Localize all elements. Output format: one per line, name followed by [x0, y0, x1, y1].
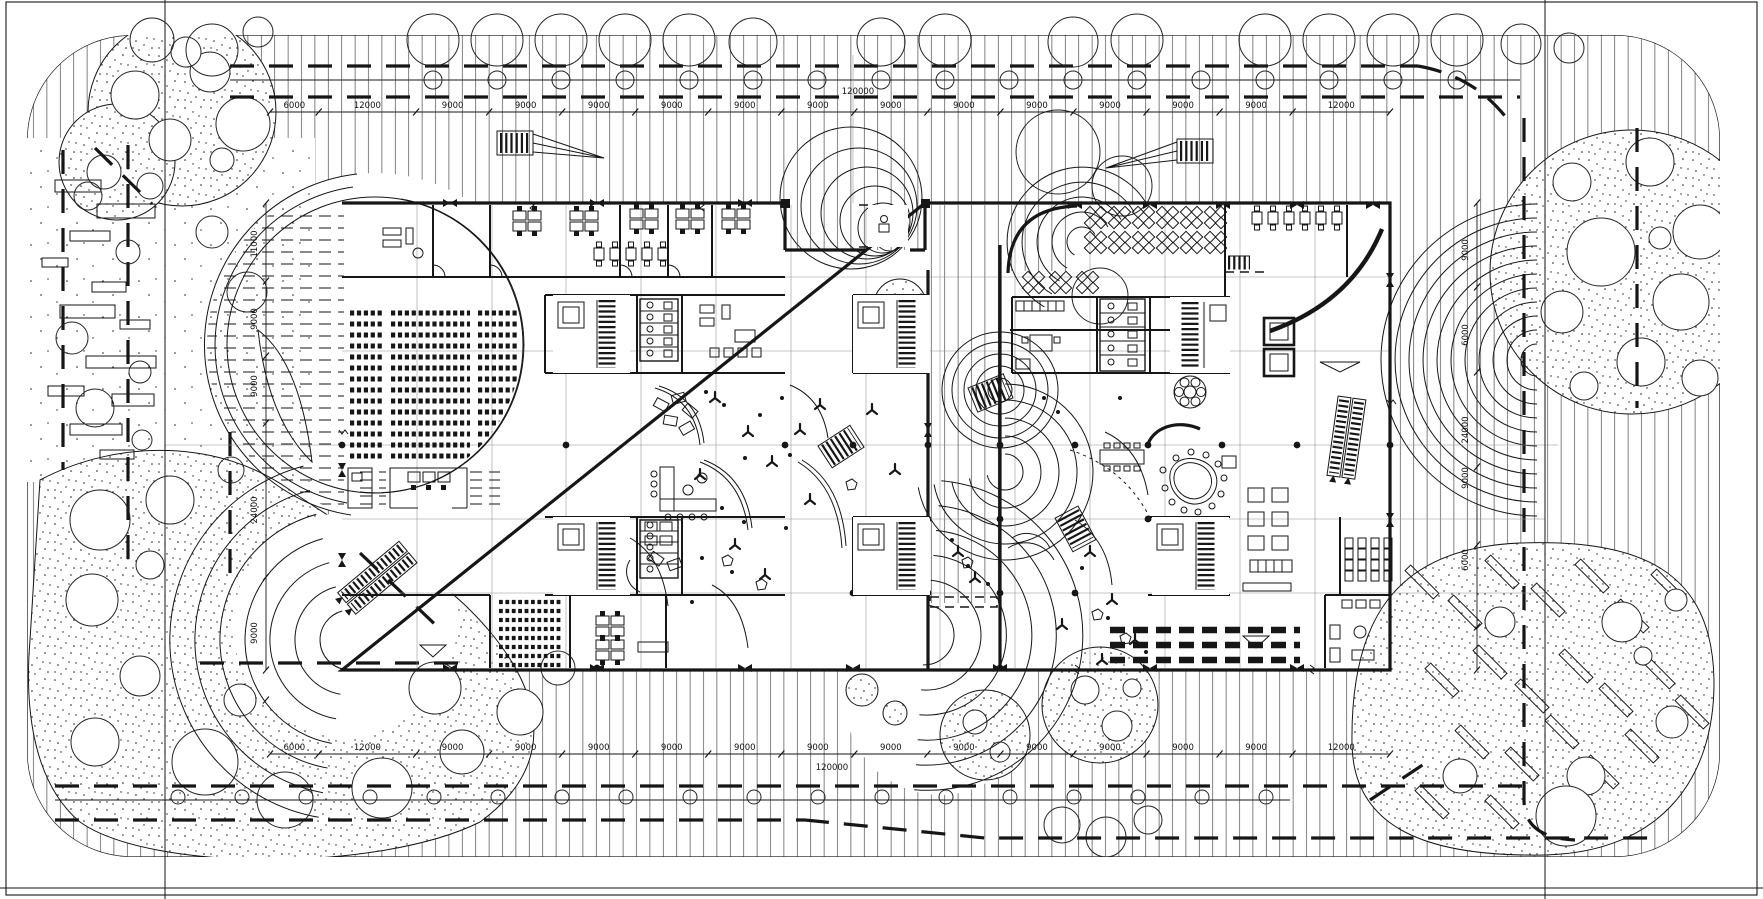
svg-text:9000: 9000 — [807, 101, 829, 111]
ground-layer — [27, 18, 1763, 860]
svg-text:12000: 12000 — [1328, 743, 1355, 753]
svg-text:9000: 9000 — [1026, 743, 1048, 753]
svg-text:9000: 9000 — [588, 743, 610, 753]
svg-text:9000: 9000 — [880, 101, 902, 111]
svg-text:9000: 9000 — [661, 743, 683, 753]
svg-text:9000: 9000 — [442, 101, 464, 111]
svg-text:9000: 9000 — [515, 101, 537, 111]
svg-text:9000: 9000 — [1172, 743, 1194, 753]
svg-text:9000: 9000 — [953, 743, 975, 753]
svg-text:9000: 9000 — [1026, 101, 1048, 111]
svg-text:9000: 9000 — [1099, 743, 1121, 753]
planting-bottom-right — [1352, 543, 1714, 855]
svg-text:9000: 9000 — [515, 743, 537, 753]
svg-text:11000: 11000 — [250, 230, 260, 257]
svg-text:120000: 120000 — [842, 87, 874, 97]
svg-text:12000: 12000 — [1328, 101, 1355, 111]
svg-text:9000: 9000 — [953, 101, 975, 111]
svg-text:24000: 24000 — [1461, 416, 1471, 443]
svg-text:9000: 9000 — [661, 101, 683, 111]
svg-text:9000: 9000 — [734, 743, 756, 753]
svg-text:6000: 6000 — [284, 743, 306, 753]
svg-text:9000: 9000 — [880, 743, 902, 753]
svg-text:9000: 9000 — [734, 101, 756, 111]
svg-text:9000: 9000 — [1461, 239, 1471, 261]
site-plan-drawing: 6000120009000900090009000900090009000900… — [0, 0, 1763, 899]
svg-text:120000: 120000 — [816, 763, 848, 773]
svg-text:9000: 9000 — [1461, 467, 1471, 489]
svg-text:6000: 6000 — [1461, 324, 1471, 346]
svg-text:9000: 9000 — [442, 743, 464, 753]
cad-sheet: 6000120009000900090009000900090009000900… — [0, 0, 1763, 899]
svg-text:12000: 12000 — [354, 101, 381, 111]
svg-text:6000: 6000 — [284, 101, 306, 111]
svg-text:9000: 9000 — [1245, 101, 1267, 111]
svg-text:24000: 24000 — [250, 496, 260, 523]
svg-text:9000: 9000 — [1099, 101, 1121, 111]
svg-text:9000: 9000 — [588, 101, 610, 111]
svg-text:9000: 9000 — [250, 375, 260, 397]
svg-text:6000: 6000 — [1461, 549, 1471, 571]
svg-text:9000: 9000 — [250, 308, 260, 330]
svg-text:9000: 9000 — [1245, 743, 1267, 753]
svg-text:9000: 9000 — [250, 622, 260, 644]
svg-text:9000: 9000 — [807, 743, 829, 753]
svg-text:12000: 12000 — [354, 743, 381, 753]
svg-text:9000: 9000 — [1172, 101, 1194, 111]
